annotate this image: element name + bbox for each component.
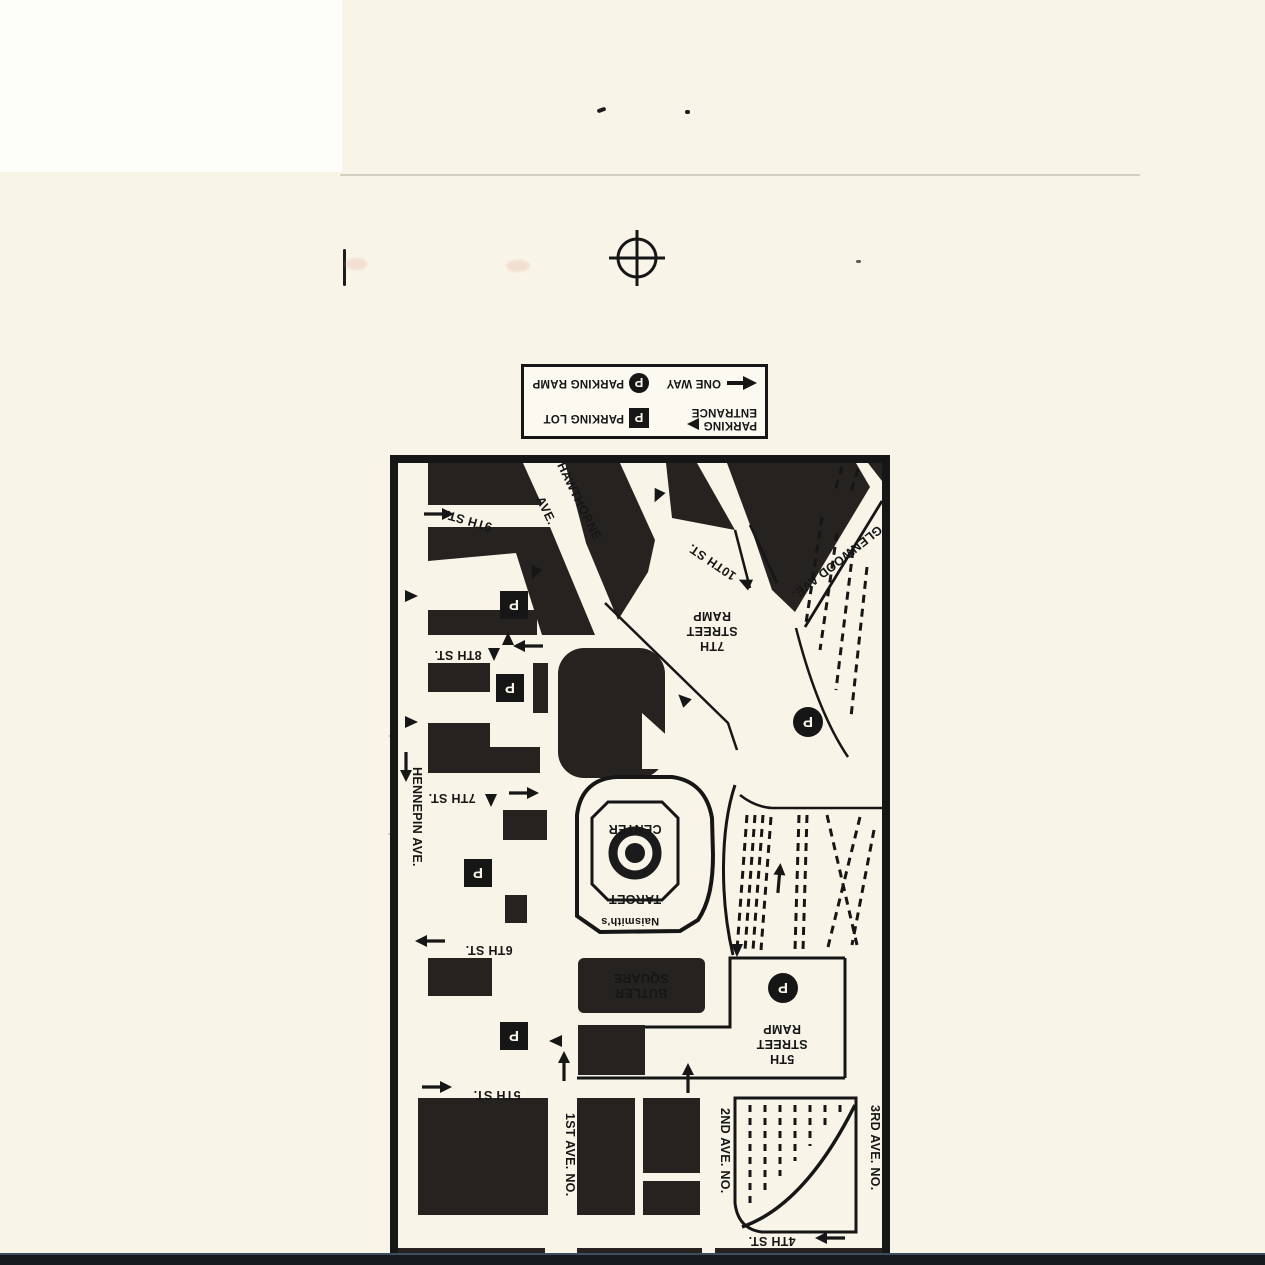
- map-legend: PARKING ENTRANCE P PARKING LOT ONE WAY: [521, 364, 768, 439]
- block: [428, 958, 492, 996]
- svg-text:P: P: [509, 596, 519, 613]
- block: [577, 1098, 635, 1215]
- street-label-6th: 6TH ST.: [465, 943, 512, 957]
- ink-speck: [856, 260, 861, 263]
- block: [428, 463, 542, 505]
- legend-row-parking-entrance: PARKING ENTRANCE P PARKING LOT: [532, 405, 757, 431]
- svg-text:5TH: 5TH: [770, 1052, 795, 1066]
- block: [418, 1098, 548, 1215]
- parking-ramp-icon: P: [629, 373, 649, 393]
- block: [428, 747, 540, 773]
- butler-label-line1: BUTLER: [615, 986, 668, 1000]
- svg-text:RAMP: RAMP: [693, 609, 731, 623]
- naismiths-label: Naismith's: [601, 915, 659, 927]
- ink-speck: [597, 107, 607, 114]
- fold-crease-top: [340, 174, 1140, 176]
- block: [578, 1025, 645, 1075]
- street-label-5th: 5TH ST.: [473, 1088, 520, 1102]
- target-center-label-line2: CENTER: [608, 822, 661, 836]
- butler-label-line2: SQUARE: [613, 971, 668, 985]
- one-way-arrow-bar: [727, 381, 743, 385]
- scan-bottom-edge: [0, 1253, 1265, 1265]
- street-label-8th: 8TH ST.: [434, 648, 481, 662]
- street-label-7th: 7TH ST.: [428, 791, 475, 805]
- legend-parking-lot-label: PARKING LOT: [543, 412, 624, 424]
- target-center-building: CENTER TARGET Naismith's: [577, 777, 713, 932]
- target-center-label-line1: TARGET: [609, 892, 661, 906]
- scanned-map-page: PARKING ENTRANCE P PARKING LOT ONE WAY: [0, 0, 1265, 1265]
- block: [428, 663, 490, 692]
- street-map: CENTER TARGET Naismith's BUTLER SQUARE 7…: [390, 455, 890, 1265]
- block: [505, 895, 527, 923]
- svg-text:P: P: [505, 679, 515, 696]
- legend-parking-entrance-label: PARKING ENTRANCE: [687, 405, 757, 431]
- butler-square-building: BUTLER SQUARE: [578, 958, 705, 1013]
- svg-text:P: P: [473, 864, 483, 881]
- street-label-1st-ave: 1ST AVE. NO.: [563, 1113, 577, 1196]
- street-label-3rd-ave: 3RD AVE. NO.: [868, 1105, 882, 1191]
- parking-ramp-symbol: P: [793, 707, 823, 737]
- parking-entrance-arrow-icon: [687, 418, 699, 430]
- street-label-hennepin: HENNEPIN AVE.: [410, 767, 424, 867]
- street-label-2nd-ave: 2ND AVE. NO.: [718, 1108, 732, 1194]
- svg-text:P: P: [509, 1027, 519, 1044]
- parking-lot-symbol: P: [496, 674, 524, 702]
- block: [503, 810, 547, 840]
- block: [643, 1098, 700, 1215]
- svg-text:P: P: [778, 979, 788, 996]
- svg-text:STREET: STREET: [756, 1037, 807, 1051]
- svg-text:RAMP: RAMP: [763, 1022, 801, 1036]
- block: [533, 663, 548, 713]
- svg-text:STREET: STREET: [686, 624, 737, 638]
- parking-lot-symbol: P: [500, 591, 528, 619]
- scan-white-corner: [0, 0, 342, 172]
- street-label-4th: 4TH ST.: [748, 1234, 795, 1248]
- parking-lot-icon: P: [629, 408, 649, 428]
- parking-lot-symbol: P: [464, 859, 492, 887]
- alley: [643, 1173, 700, 1181]
- scan-smudge: [506, 260, 530, 272]
- scan-smudge: [345, 258, 367, 270]
- registration-mark: [605, 226, 669, 290]
- ink-speck: [685, 110, 690, 114]
- parking-lot-symbol: P: [500, 1022, 528, 1050]
- ink-speck: [343, 249, 346, 286]
- legend-one-way-label: ONE WAY: [666, 377, 721, 389]
- legend-row-one-way: ONE WAY P PARKING RAMP: [532, 373, 757, 393]
- one-way-arrow-icon: [743, 376, 757, 390]
- svg-text:P: P: [803, 713, 813, 730]
- legend-parking-ramp-label: PARKING RAMP: [532, 377, 624, 389]
- svg-text:7TH: 7TH: [700, 639, 725, 653]
- parking-ramp-symbol: P: [768, 973, 798, 1003]
